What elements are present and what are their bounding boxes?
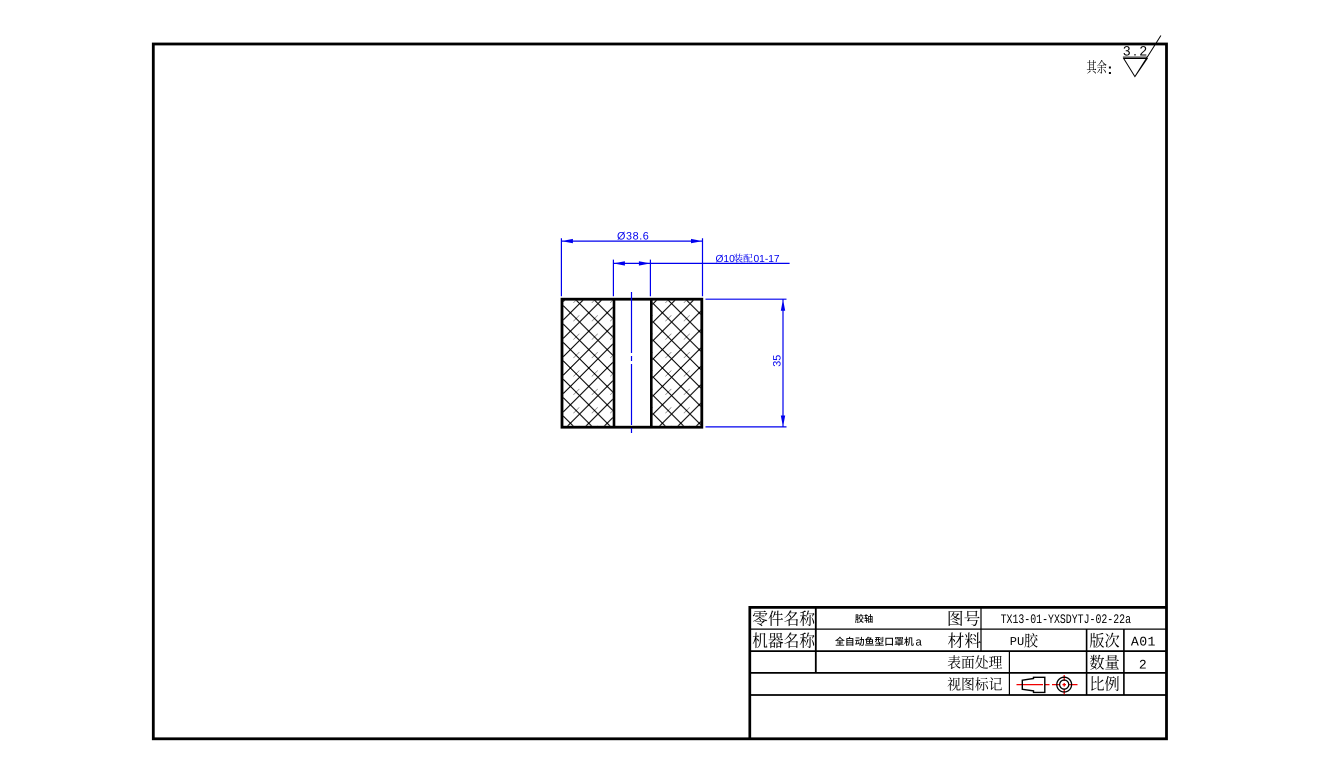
svg-text:Ø38.6: Ø38.6 bbox=[617, 231, 649, 243]
svg-text:01-17: 01-17 bbox=[754, 254, 780, 265]
svg-text:a: a bbox=[915, 636, 922, 649]
svg-text:35: 35 bbox=[772, 355, 784, 367]
svg-text:2: 2 bbox=[1139, 657, 1147, 672]
svg-text:A01: A01 bbox=[1131, 635, 1156, 650]
svg-text:Ø10: Ø10 bbox=[716, 254, 736, 265]
svg-text:TX13-01-YXSDYTJ-02-22a: TX13-01-YXSDYTJ-02-22a bbox=[1001, 612, 1132, 627]
svg-text:3.2: 3.2 bbox=[1123, 44, 1150, 59]
svg-text:PU: PU bbox=[1010, 635, 1024, 649]
